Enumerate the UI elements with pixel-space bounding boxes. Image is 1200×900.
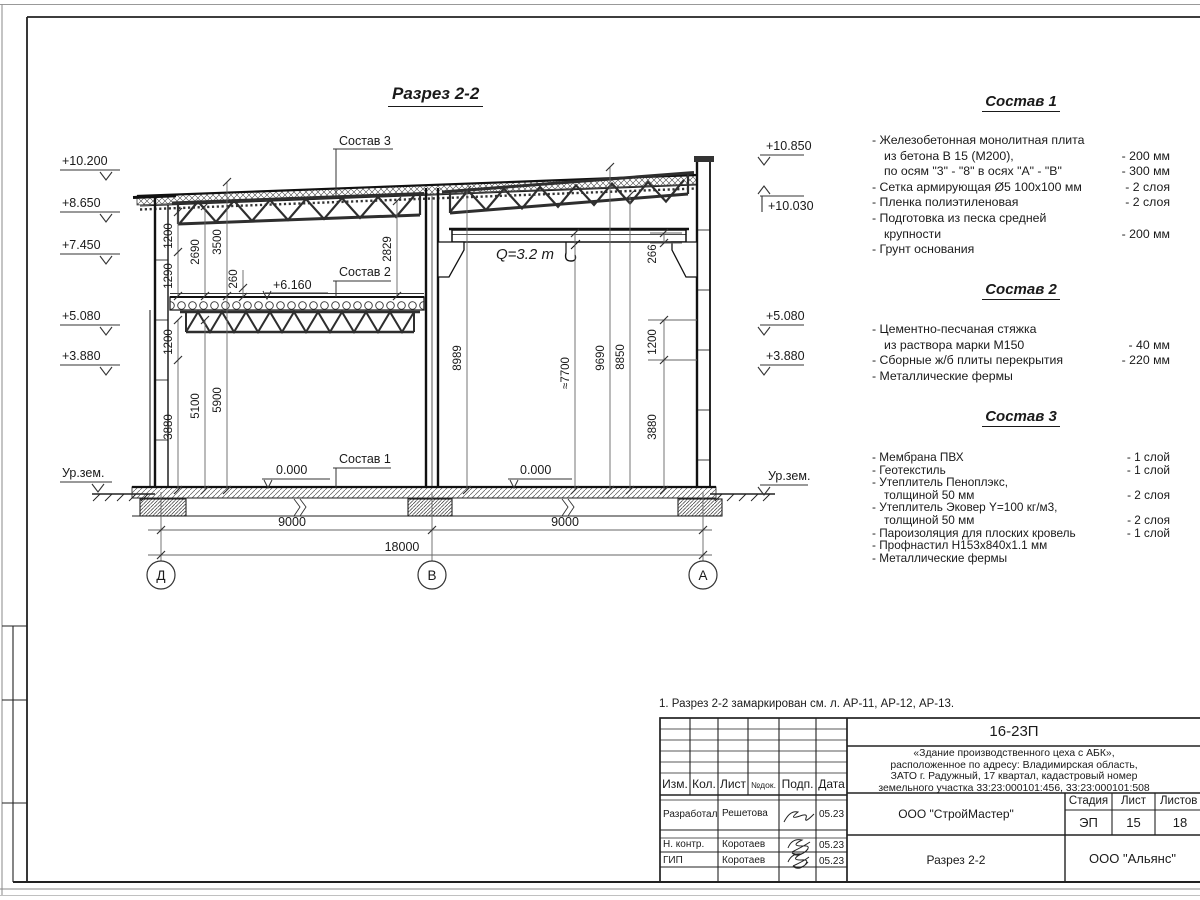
- client: ООО "Альянс": [1065, 851, 1200, 866]
- ground-slab: [132, 487, 716, 498]
- composition-row: - Металлические фермы: [872, 552, 1170, 565]
- sostav2-label: Состав 2: [339, 265, 391, 279]
- composition-row: из бетона В 15 (М200),- 200 мм: [872, 149, 1170, 165]
- signatures: [784, 812, 814, 869]
- composition-1-title: Состав 1: [872, 93, 1170, 110]
- signature-razrabotal: [784, 812, 814, 822]
- doc-number: 16-23П: [847, 723, 1181, 740]
- composition-row: - Металлические фермы: [872, 369, 1170, 385]
- composition-row: - Сетка армирующая Ø5 100х100 мм- 2 слоя: [872, 180, 1170, 196]
- composition-row: по осям "3" - "8" в осях "А" - "В"- 300 …: [872, 164, 1170, 180]
- signature-gip: [788, 854, 809, 868]
- elevation-label: +5.080: [766, 309, 805, 323]
- composition-row: - Утеплитель Пеноплэкс,: [872, 476, 1170, 489]
- col-list: Лист: [718, 777, 748, 791]
- composition-1-rows: - Железобетонная монолитная плитаиз бето…: [872, 133, 1170, 258]
- building-section: [92, 156, 775, 516]
- role-nkontr: Н. контр.: [663, 839, 704, 850]
- col-data: Дата: [816, 777, 847, 791]
- name-gip: Коротаев: [722, 855, 765, 866]
- role-razrabotal: Разработал: [663, 809, 717, 820]
- elevation-label: +10.850: [766, 139, 812, 153]
- zero-level-left: 0.000: [276, 463, 307, 477]
- zero-level-right: 0.000: [520, 463, 551, 477]
- dim-label: 3880: [163, 414, 175, 440]
- composition-1: Состав 1 - Железобетонная монолитная пли…: [872, 93, 1170, 258]
- elevation-label: +5.080: [62, 309, 101, 323]
- date-nkontr: 05.23: [816, 840, 847, 851]
- dim-label: 1290: [163, 263, 175, 289]
- composition-row: - Профнастил Н153х840х1.1 мм: [872, 539, 1170, 552]
- span-dim-left: 9000: [278, 515, 306, 529]
- composition-row: из раствора марки М150- 40 мм: [872, 338, 1170, 354]
- composition-3: Состав 3 - Мембрана ПВХ- 1 слой- Геотекс…: [872, 408, 1170, 564]
- composition-2-rows: - Цементно-песчаная стяжкаиз раствора ма…: [872, 322, 1170, 384]
- description-line: земельного участка 33:23:000101:456, 33:…: [850, 783, 1178, 795]
- date-gip: 05.23: [816, 856, 847, 867]
- signature-nkontr: [788, 840, 810, 855]
- dim-label: 1200: [163, 223, 175, 249]
- elevation-label: +8.650: [62, 196, 101, 210]
- composition-row: - Мембрана ПВХ- 1 слой: [872, 451, 1170, 464]
- composition-row: - Железобетонная монолитная плита: [872, 133, 1170, 149]
- drawing-sheet: 1200 1290 2690 3500 260 2829 1200 3880 5…: [0, 0, 1200, 900]
- col-izm: Изм.: [660, 777, 690, 791]
- col-ndok: №док.: [748, 780, 779, 790]
- elevation-label: +10.030: [768, 199, 814, 213]
- dim-label: 266: [647, 244, 659, 263]
- dim-label: 9690: [595, 345, 607, 371]
- composition-2-title: Состав 2: [872, 281, 1170, 298]
- mid-floor-slab: [170, 294, 424, 311]
- stage-value: ЭП: [1065, 815, 1112, 830]
- dim-label: 8989: [452, 345, 464, 371]
- dim-label: 3500: [212, 229, 224, 255]
- axis-circle-d: Д: [156, 568, 165, 583]
- composition-3-rows: - Мембрана ПВХ- 1 слой- Геотекстиль- 1 с…: [872, 451, 1170, 564]
- sostav1-label: Состав 1: [339, 452, 391, 466]
- drawing-title: Разрез 2-2: [388, 84, 483, 107]
- axis-circle-a: А: [698, 568, 707, 583]
- sheets-total: 18: [1155, 815, 1200, 830]
- dim-label: 5900: [212, 387, 224, 413]
- foundation: [132, 499, 722, 516]
- dim-label: ≈7700: [560, 357, 572, 389]
- col-podp: Подп.: [779, 777, 816, 791]
- dim-label: 1200: [163, 329, 175, 355]
- name-razrabotal: Решетова: [722, 808, 768, 819]
- composition-row: - Подготовка из песка средней: [872, 211, 1170, 227]
- elevation-label: +3.880: [766, 349, 805, 363]
- composition-2: Состав 2 - Цементно-песчаная стяжкаиз ра…: [872, 281, 1170, 384]
- mid-truss: [180, 312, 420, 332]
- dim-label: 2690: [190, 239, 202, 265]
- dim-label: 1200: [647, 329, 659, 355]
- description-line: расположенное по адресу: Владимирская об…: [850, 760, 1178, 772]
- left-strip: [2, 626, 27, 882]
- dim-label: 2829: [382, 236, 394, 262]
- drawing-name: Разрез 2-2: [847, 853, 1065, 867]
- span-dim-total: 18000: [385, 540, 420, 554]
- composition-row: - Цементно-песчаная стяжка: [872, 322, 1170, 338]
- span-dim-right: 9000: [551, 515, 579, 529]
- elevation-marks-right: +10.850 +10.030 +5.080 +3.880 Ур.зем.: [758, 139, 814, 495]
- role-gip: ГИП: [663, 855, 683, 866]
- dim-label: 3880: [647, 414, 659, 440]
- span-dimension-labels: 9000 9000 18000: [278, 515, 579, 554]
- crane-capacity-label: Q=3.2 т: [496, 246, 554, 263]
- sostav3-label: Состав 3: [339, 134, 391, 148]
- dim-label: 5100: [190, 393, 202, 419]
- composition-3-title: Состав 3: [872, 408, 1170, 425]
- composition-row: - Сборные ж/б плиты перекрытия- 220 мм: [872, 353, 1170, 369]
- composition-row: крупности- 200 мм: [872, 227, 1170, 243]
- name-nkontr: Коротаев: [722, 839, 765, 850]
- elevation-label: +10.200: [62, 154, 108, 168]
- axis-circle-v: В: [427, 568, 436, 583]
- dim-label: 260: [228, 269, 240, 288]
- elevation-marks-left: +10.200 +8.650 +7.450 +5.080 +3.880 Ур.з…: [60, 154, 120, 492]
- column-axis-v: [426, 188, 438, 488]
- elevation-label: Ур.зем.: [768, 469, 810, 483]
- sheet-label: Лист: [1112, 795, 1155, 807]
- wall-axis-a: [694, 156, 714, 488]
- axis-markers: Д В А: [147, 561, 717, 589]
- sheet-note: 1. Разрез 2-2 замаркирован см. л. АР-11,…: [659, 698, 954, 710]
- composition-row: - Пленка полиэтиленовая- 2 слоя: [872, 195, 1170, 211]
- col-kol: Кол.: [690, 777, 718, 791]
- dim-label: 8850: [615, 344, 627, 370]
- project-description: «Здание производственного цеха с АБК», р…: [850, 748, 1178, 794]
- sheet-number: 15: [1112, 815, 1155, 830]
- composition-row: толщиной 50 мм- 2 слоя: [872, 514, 1170, 527]
- elevation-label: +7.450: [62, 238, 101, 252]
- level-6160-label: +6.160: [273, 278, 312, 292]
- contractor: ООО "СтройМастер": [847, 807, 1065, 821]
- description-line: «Здание производственного цеха с АБК»,: [850, 748, 1178, 760]
- elevation-label: +3.880: [62, 349, 101, 363]
- sheets-label: Листов: [1160, 795, 1200, 807]
- stage-label: Стадия: [1065, 795, 1112, 807]
- elevation-label: Ур.зем.: [62, 466, 104, 480]
- composition-row: - Грунт основания: [872, 242, 1170, 258]
- description-line: ЗАТО г. Радужный, 17 квартал, кадастровы…: [850, 771, 1178, 783]
- crane-hook: [566, 240, 580, 261]
- date-razrabotal: 05.23: [816, 809, 847, 820]
